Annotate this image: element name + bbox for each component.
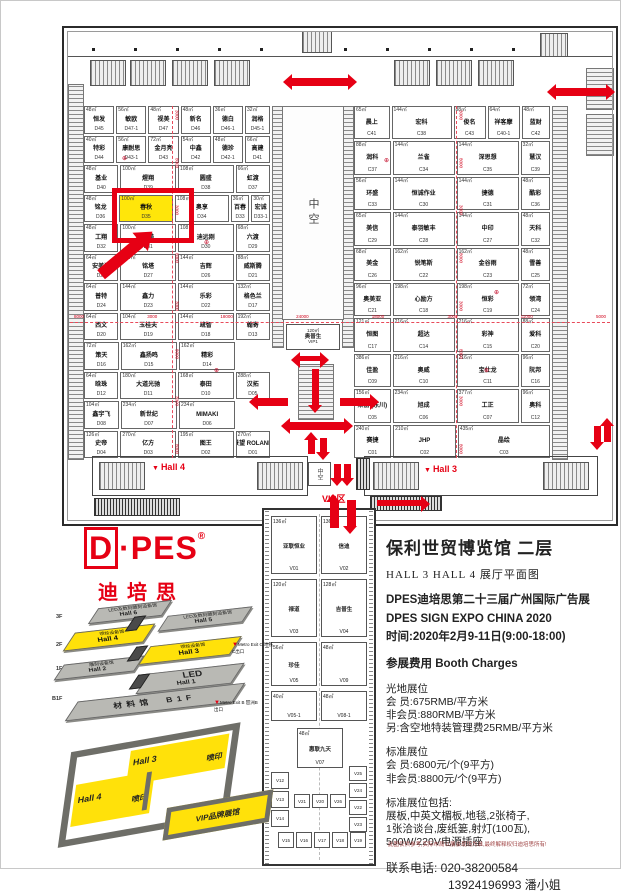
booth-area: 104㎡ — [86, 403, 99, 408]
booth-area: 64㎡ — [86, 285, 97, 290]
booth-id: D22 — [201, 304, 210, 309]
booth-C24[interactable]: 72㎡领湾C24 — [521, 283, 550, 316]
booth-D38[interactable]: 108㎡圆盛D38 — [178, 165, 234, 193]
right-arrow — [340, 398, 370, 406]
booth-id: D14 — [203, 363, 212, 368]
atrium-small-label: 中空 — [315, 468, 324, 480]
booth-id: D40 — [97, 186, 106, 191]
booth-name: 康耐思 — [122, 146, 140, 152]
list-item: 8000 — [174, 158, 179, 168]
left-arrow — [258, 398, 288, 406]
booth-V09[interactable]: 48㎡V09 — [321, 642, 367, 686]
booth-C36[interactable]: 48㎡酷彩C36 — [521, 177, 550, 210]
booth-row: 156㎡莱丽 (东川)C05234㎡旭成C06377㎡工正C0796㎡奥科C12 — [354, 389, 550, 422]
booth-name: 泰羽敏丰 — [412, 226, 436, 232]
booth-V14[interactable]: V14 — [271, 810, 289, 827]
booth-D01[interactable]: 270㎡景望 ROLANDD01 — [236, 431, 270, 459]
booth-C07[interactable]: 377㎡工正C07 — [457, 389, 519, 422]
booth-D10[interactable]: 168㎡泰田D10 — [178, 372, 234, 400]
vip-small-booths-right: V25V24V22V23 — [349, 766, 367, 832]
booth-text: 珍佳 — [288, 661, 299, 669]
booth-D47-1[interactable]: 56㎡敏欧D47-1 — [116, 106, 146, 134]
booth-C10[interactable]: 216㎡奥威C10 — [393, 354, 455, 387]
booth-area: 210㎡ — [395, 427, 408, 432]
booth-V03[interactable]: 120㎡禄道V03 — [271, 579, 317, 637]
booth-name: 润格 — [251, 117, 263, 123]
booth-area: 64㎡ — [86, 256, 97, 261]
hydrant-icon: ⊕ — [384, 158, 389, 164]
booth-area: 72㎡ — [150, 138, 161, 143]
booth-text: V02 — [340, 566, 349, 572]
lift-block — [257, 462, 303, 490]
booth-D23[interactable]: 144㎡鑫力D23 — [120, 283, 176, 311]
booth-id: C36 — [531, 203, 540, 208]
booth-C27[interactable]: 144㎡中印C27 — [457, 212, 519, 245]
booth-V22[interactable]: V22 — [349, 800, 367, 815]
booth-name: 爱科 — [529, 332, 541, 338]
booth-D33-1[interactable]: 30㎡宏诚D33-1 — [251, 195, 270, 223]
booth-area: 48㎡ — [523, 250, 534, 255]
booth-area: 386㎡ — [356, 356, 369, 361]
booth-name: 视美 — [158, 117, 170, 123]
booth-C21[interactable]: 96㎡奥美亚C21 — [354, 283, 391, 316]
hall4-entrance-structure — [92, 456, 308, 496]
booth-D02[interactable]: 195㎡图王D02 — [178, 431, 234, 459]
booth-text: 48㎡ — [323, 644, 334, 651]
booth-id: C17 — [368, 345, 377, 350]
booth-V20[interactable]: V20 — [312, 794, 328, 808]
booth-D45[interactable]: 48㎡恒发D45 — [84, 106, 114, 134]
booth-area: 36㎡ — [233, 197, 244, 202]
booth-id: D38 — [201, 186, 210, 191]
hydrant-icon: ⊕ — [204, 240, 209, 246]
booth-name: 俊名 — [463, 120, 475, 126]
booth-name: 美金 — [366, 261, 378, 267]
booth-area: 144㎡ — [122, 285, 135, 290]
two-way-arrow — [290, 422, 344, 430]
down-arrow — [334, 464, 341, 478]
booth-id: D10 — [201, 392, 210, 397]
booth-name: 中印 — [482, 226, 494, 232]
booth-text: 48㎡ — [323, 693, 334, 700]
booth-area: 234㎡ — [123, 403, 136, 408]
booth-C17[interactable]: 121㎡恒图C17 — [354, 318, 391, 351]
booth-name: 威斯腾 — [244, 264, 262, 270]
booth-name: 奥威 — [418, 368, 430, 374]
stair-block — [540, 33, 568, 57]
booth-V17[interactable]: V17 — [314, 832, 330, 848]
escalator-block — [214, 60, 250, 86]
booth-D45-1[interactable]: 32㎡润格D45-1 — [245, 106, 270, 134]
booth-D39[interactable]: 100㎡煋翔D39 — [120, 165, 176, 193]
booth-id: D19 — [144, 333, 153, 338]
booth-name: 天科 — [529, 226, 541, 232]
booth-id: C34 — [419, 168, 428, 173]
booth-area: 56㎡ — [118, 138, 129, 143]
booth-area: 68㎡ — [238, 226, 249, 231]
booth-id: C20 — [531, 345, 540, 350]
booth-D22[interactable]: 144㎡乐彩D22 — [178, 283, 234, 311]
vip-booth-row: 40㎡V05-148㎡V08-1 — [271, 691, 367, 721]
booth-D35[interactable]: 100㎡春秋D35 — [119, 195, 173, 223]
booth-name: 泰田 — [200, 382, 212, 388]
booth-id: C12 — [531, 416, 540, 421]
booth-id: C07 — [483, 416, 492, 421]
booth-row: 240㎡赛捷C01210㎡JHPC02435㎡晶绘C03 — [354, 425, 550, 458]
booth-area: 162㎡ — [395, 250, 408, 255]
floor-label-b1f: B1F — [52, 696, 62, 702]
booth-area: 108㎡ — [180, 167, 193, 172]
booth-D42-1[interactable]: 48㎡德珍D42-1 — [213, 136, 243, 164]
booth-name: 酷彩 — [529, 191, 541, 197]
booth-V07[interactable]: 48㎡ 惠联九天 V07 — [297, 728, 343, 768]
booth-name: 煋翔 — [142, 176, 154, 182]
booth-text: 56㎡ — [273, 644, 284, 651]
up-arrow — [604, 426, 611, 442]
down-arrow — [594, 426, 601, 442]
booth-area: 48㎡ — [150, 108, 161, 113]
booth-D33[interactable]: 36㎡百春D33 — [231, 195, 250, 223]
booth-id: D45 — [95, 127, 104, 132]
booth-V24[interactable]: V24 — [349, 783, 367, 798]
booth-D21[interactable]: 88㎡威斯腾D21 — [236, 254, 270, 282]
booth-area: 126㎡ — [86, 433, 99, 438]
list-item: 3000 — [174, 396, 179, 406]
booth-V18[interactable]: V18 — [332, 832, 348, 848]
hall4-label: ▼Hall 4 — [152, 462, 185, 472]
booth-name: 超达 — [418, 332, 430, 338]
up-arrow — [330, 502, 339, 528]
stairs-strip — [370, 496, 442, 511]
booth-name: MIMAKI — [196, 412, 218, 418]
booth-VIP1[interactable]: 120㎡ 奥普生 VIP1 — [286, 324, 340, 350]
booth-C42[interactable]: 48㎡蓝财C42 — [522, 106, 551, 139]
booth-name: 普特 — [95, 294, 107, 300]
booth-D12[interactable]: 64㎡晗珠D12 — [84, 372, 118, 400]
booth-row: 68㎡美金C26162㎡锐笔斯C22162㎡金谷雨C2348㎡雪善C25 — [354, 248, 550, 281]
booth-D32[interactable]: 48㎡工翔D32 — [84, 224, 118, 252]
booth-C26[interactable]: 68㎡美金C26 — [354, 248, 391, 281]
lift-block — [436, 60, 472, 86]
booth-name: 晗珠 — [95, 382, 107, 388]
booth-D04[interactable]: 126㎡史帝D04 — [84, 431, 118, 459]
booth-D34[interactable]: 108㎡奥享D34 — [175, 195, 229, 223]
booth-area: 168㎡ — [180, 374, 193, 379]
booth-V13[interactable]: V13 — [271, 791, 289, 808]
booth-area: 144㎡ — [180, 285, 193, 290]
booth-area: 48㎡ — [86, 167, 97, 172]
escalator-block — [130, 60, 166, 86]
booth-C32[interactable]: 48㎡天科C32 — [521, 212, 550, 245]
booth-name: 工翔 — [95, 235, 107, 241]
atrium-label: 中空 — [305, 198, 321, 228]
booth-id: C05 — [368, 416, 377, 421]
booth-area: 100㎡ — [121, 197, 134, 202]
booth-area: 56㎡ — [118, 108, 129, 113]
booth-id: C28 — [419, 239, 428, 244]
list-item: 11000 — [521, 315, 533, 320]
list-item: 3000 — [174, 110, 179, 120]
booth-area: 162㎡ — [181, 344, 194, 349]
booth-name: 领湾 — [529, 297, 541, 303]
plan-subtitle: HALL 3 HALL 4 展厅平面图 — [386, 566, 618, 582]
booth-C03[interactable]: 435㎡晶绘C03 — [458, 425, 550, 458]
booth-D24[interactable]: 64㎡普特D24 — [84, 283, 118, 311]
booth-name: 精彩 — [201, 353, 213, 359]
list-item: 会 员:675RMB/平方米 — [386, 696, 618, 709]
hall3-label: ▼Hall 3 — [424, 464, 457, 474]
booth-area: 144㎡ — [395, 179, 408, 184]
dpes-logo: D·PES® — [84, 532, 206, 564]
stair-block — [99, 462, 145, 490]
booth-V12[interactable]: V12 — [271, 772, 289, 789]
charges-title: 参展费用 Booth Charges — [386, 657, 618, 673]
booth-area: 32㎡ — [247, 108, 258, 113]
floor-label-2f: 2F — [56, 642, 62, 648]
booth-D26[interactable]: 144㎡吉辉D26 — [178, 254, 234, 282]
booth-D46[interactable]: 48㎡新名D46 — [181, 106, 211, 134]
booth-row: 65㎡晨上C41144㎡宏科C3888㎡俊名C4364㎡祥客摩C40-148㎡蓝… — [354, 106, 550, 139]
metro-exit-b: ▼Metro Exit B 琶洲B出口 — [214, 700, 260, 712]
booth-name: 恒图 — [366, 332, 378, 338]
booth-name: 西文 — [95, 323, 107, 329]
booth-V21[interactable]: V21 — [294, 794, 310, 808]
booth-name: 慧汉 — [529, 155, 541, 161]
booth-D40[interactable]: 48㎡基业D40 — [84, 165, 118, 193]
booth-D46-1[interactable]: 36㎡德白D46-1 — [213, 106, 243, 134]
booth-id: D17 — [248, 304, 257, 309]
booth-name: 锐笔斯 — [415, 261, 433, 267]
booth-name: 美信 — [366, 226, 378, 232]
booth-area: 132㎡ — [238, 285, 251, 290]
booth-name: 赛捷 — [367, 438, 379, 444]
booth-name: 奥享 — [196, 205, 208, 211]
booth-name: 深思想 — [479, 155, 497, 161]
booth-id: C43 — [465, 132, 474, 137]
two-way-arrow-small — [300, 356, 320, 361]
booth-name: 捷德 — [482, 191, 494, 197]
booth-C35[interactable]: 144㎡深思想C35 — [457, 141, 519, 174]
booth-text: 120㎡ — [273, 581, 286, 588]
booth-name: 奥科 — [529, 403, 541, 409]
booth-C15[interactable]: 216㎡彩神C15 — [457, 318, 519, 351]
booth-D41[interactable]: 66㎡高建D41 — [245, 136, 270, 164]
booth-area: 234㎡ — [181, 403, 194, 408]
down-arrow — [312, 369, 319, 405]
booth-V05[interactable]: 56㎡珍佳V05 — [271, 642, 317, 686]
vip-corridor: 136㎡亚联恒业V01136㎡信迪V02120㎡禄道V03128㎡吉普生V045… — [262, 508, 376, 866]
list-item: 3000 — [458, 110, 463, 120]
booth-D17[interactable]: 132㎡格色兰D17 — [236, 283, 270, 311]
booth-V16[interactable]: V16 — [296, 832, 312, 848]
booth-id: C11 — [483, 380, 492, 385]
booth-name: 图王 — [200, 441, 212, 447]
booth-C38[interactable]: 144㎡宏科C38 — [392, 106, 452, 139]
booth-C22[interactable]: 162㎡锐笔斯C22 — [393, 248, 455, 281]
booth-id: D08 — [97, 422, 106, 427]
registered-mark: ® — [198, 531, 206, 542]
booth-name: 蓝财 — [530, 120, 542, 126]
booth-area: 54㎡ — [183, 138, 194, 143]
booth-name: 晶绘 — [498, 438, 510, 444]
list-item: 8000 — [174, 253, 179, 263]
booth-id: D27 — [144, 274, 153, 279]
booth-id: D23 — [144, 304, 153, 309]
booth-id: D45-1 — [251, 127, 265, 132]
booth-C31[interactable]: 144㎡捷德C31 — [457, 177, 519, 210]
booth-D06[interactable]: 234㎡MIMAKID06 — [179, 401, 235, 429]
booth-D37[interactable]: 66㎡虹渡D37 — [236, 165, 270, 193]
booth-D29[interactable]: 68㎡六渡D29 — [236, 224, 270, 252]
booth-id: D46-1 — [221, 127, 235, 132]
booth-area: 48㎡ — [86, 226, 97, 231]
booth-V25[interactable]: V25 — [349, 766, 367, 781]
booth-text: V04 — [340, 629, 349, 635]
booth-text: 128㎡ — [323, 581, 336, 588]
booth-C06[interactable]: 234㎡旭成C06 — [393, 389, 455, 422]
includes-title: 标准展位包括: — [386, 795, 618, 810]
booth-C34[interactable]: 144㎡兰雀C34 — [393, 141, 455, 174]
booth-C01[interactable]: 240㎡赛捷C01 — [354, 425, 391, 458]
down-arrow — [320, 438, 327, 452]
booth-name: 敏欧 — [125, 117, 137, 123]
booth-C41[interactable]: 65㎡晨上C41 — [354, 106, 390, 139]
hall-minimap: Hall 3喷印 Hall 4喷印 VIP品牌展馆 — [35, 710, 269, 875]
booth-area: 48㎡ — [523, 179, 534, 184]
booth-text: V05-1 — [287, 713, 300, 719]
booth-C30[interactable]: 144㎡恒诚作业C30 — [393, 177, 455, 210]
booth-V05-1[interactable]: 40㎡V05-1 — [271, 691, 317, 721]
booth-V02[interactable]: 136㎡信迪V02 — [321, 516, 367, 574]
booth-C23[interactable]: 162㎡金谷雨C23 — [457, 248, 519, 281]
booth-row: 56㎡环盛C33144㎡恒诚作业C30144㎡捷德C3148㎡酷彩C36 — [354, 177, 550, 210]
booth-V19[interactable]: V19 — [350, 832, 366, 848]
booth-D44[interactable]: 40㎡特彩D44 — [84, 136, 114, 164]
down-arrow — [347, 500, 356, 526]
booth-D42[interactable]: 54㎡中鑫D42 — [181, 136, 211, 164]
booth-C12[interactable]: 96㎡奥科C12 — [521, 389, 550, 422]
raw-space-title: 光地展位 — [386, 681, 618, 696]
booth-id: C14 — [419, 345, 428, 350]
booth-area: 108㎡ — [177, 197, 190, 202]
booth-id: D42 — [191, 156, 200, 161]
booth-id: C37 — [368, 168, 377, 173]
booth-area: 65㎡ — [356, 108, 367, 113]
escalator-down — [298, 364, 334, 420]
booth-area: 144㎡ — [395, 214, 408, 219]
booth-text: 亚联恒业 — [283, 542, 305, 550]
booth-id: C23 — [483, 274, 492, 279]
booth-C33[interactable]: 56㎡环盛C33 — [354, 177, 391, 210]
booth-area: 96㎡ — [523, 356, 534, 361]
booth-area: 96㎡ — [356, 285, 367, 290]
list-item: 5000 — [596, 315, 606, 320]
booth-id: C31 — [483, 203, 492, 208]
booth-area: 195㎡ — [180, 433, 193, 438]
booth-C16[interactable]: 96㎡阮邦C16 — [521, 354, 550, 387]
booth-text: V08-1 — [337, 713, 350, 719]
booth-D43-1[interactable]: 56㎡康耐思D43-1 — [116, 136, 146, 164]
booth-D11[interactable]: 180㎡大道光驰D11 — [120, 372, 176, 400]
booth-V26[interactable]: V26 — [330, 794, 346, 808]
booth-area: 288㎡ — [238, 374, 251, 379]
booth-text: 40㎡ — [273, 693, 284, 700]
booth-id: D34 — [197, 215, 206, 220]
booth-row: 65㎡美信C29144㎡泰羽敏丰C28144㎡中印C2748㎡天科C32 — [354, 212, 550, 245]
dimension-line-vertical — [456, 106, 457, 458]
vip-booth-pairs: 136㎡亚联恒业V01136㎡信迪V02120㎡禄道V03128㎡吉普生V045… — [271, 516, 367, 721]
booth-C18[interactable]: 198㎡心励方C18 — [393, 283, 455, 316]
booth-C09[interactable]: 386㎡佳盈C09 — [354, 354, 391, 387]
right-arrow — [377, 500, 421, 506]
booth-area: 72㎡ — [523, 285, 534, 290]
booth-V01[interactable]: 136㎡亚联恒业V01 — [271, 516, 317, 574]
booth-V08-1[interactable]: 48㎡V08-1 — [321, 691, 367, 721]
booth-name: 鑫扬鸣 — [140, 353, 158, 359]
booth-C20[interactable]: 88㎡爱科C20 — [521, 318, 550, 351]
booth-name: 彩神 — [482, 332, 494, 338]
booth-name: 六渡 — [247, 235, 259, 241]
booth-id: D12 — [97, 392, 106, 397]
booth-C29[interactable]: 65㎡美信C29 — [354, 212, 391, 245]
booth-D36[interactable]: 48㎡铭龙D36 — [84, 195, 117, 223]
hydrant-icon: ⊕ — [484, 368, 489, 374]
list-item: 18000 — [220, 315, 233, 320]
booth-D03[interactable]: 270㎡亿方D03 — [120, 431, 176, 459]
dimension-line-horizontal — [70, 322, 610, 323]
hydrant-icon: ⊕ — [122, 156, 127, 162]
booth-D15[interactable]: 162㎡鑫扬鸣D15 — [121, 342, 177, 370]
booth-id: D26 — [201, 274, 210, 279]
booth-name: 玉桂夫 — [139, 323, 157, 329]
booth-C25[interactable]: 48㎡雪善C25 — [521, 248, 550, 281]
booth-id: D47-1 — [124, 127, 138, 132]
booth-area: 198㎡ — [395, 285, 408, 290]
booth-id: D47 — [159, 127, 168, 132]
booth-name: 兰雀 — [418, 155, 430, 161]
booth-area: 66㎡ — [238, 167, 249, 172]
booth-C19[interactable]: 198㎡恒彩C19 — [457, 283, 519, 316]
booth-D30[interactable]: 108㎡迪远刚D30 — [178, 224, 234, 252]
booth-id: C22 — [419, 274, 428, 279]
booth-C39[interactable]: 32㎡慧汉C39 — [521, 141, 550, 174]
booth-C02[interactable]: 210㎡JHPC02 — [393, 425, 456, 458]
booth-id: D20 — [97, 333, 106, 338]
expo-title-en: DPES SIGN EXPO CHINA 2020 — [386, 612, 618, 628]
booth-name: 宏诚 — [255, 205, 267, 211]
ceiling-dots — [92, 48, 588, 51]
booth-name: 恒彩 — [482, 297, 494, 303]
dimension-line-vertical — [172, 106, 173, 458]
booth-id: C10 — [419, 380, 428, 385]
booth-D16[interactable]: 72㎡策天D16 — [84, 342, 119, 370]
booth-D14[interactable]: 162㎡精彩D14 — [179, 342, 235, 370]
booth-V04[interactable]: 128㎡吉普生V04 — [321, 579, 367, 637]
booth-id: D13 — [248, 333, 257, 338]
booth-area: 270㎡ — [122, 433, 135, 438]
booth-C40-1[interactable]: 64㎡祥客摩C40-1 — [488, 106, 520, 139]
booth-V15[interactable]: V15 — [278, 832, 294, 848]
booth-id: D24 — [97, 304, 106, 309]
booth-C14[interactable]: 216㎡超达C14 — [393, 318, 455, 351]
booth-V23[interactable]: V23 — [349, 817, 367, 832]
booth-D08[interactable]: 104㎡鑫宇飞D08 — [84, 401, 119, 429]
booth-C28[interactable]: 144㎡泰羽敏丰C28 — [393, 212, 455, 245]
booth-name: 翰寄 — [247, 323, 259, 329]
booth-text: V03 — [290, 629, 299, 635]
booth-id: D15 — [144, 363, 153, 368]
booth-D07[interactable]: 234㎡新世纪D07 — [121, 401, 177, 429]
